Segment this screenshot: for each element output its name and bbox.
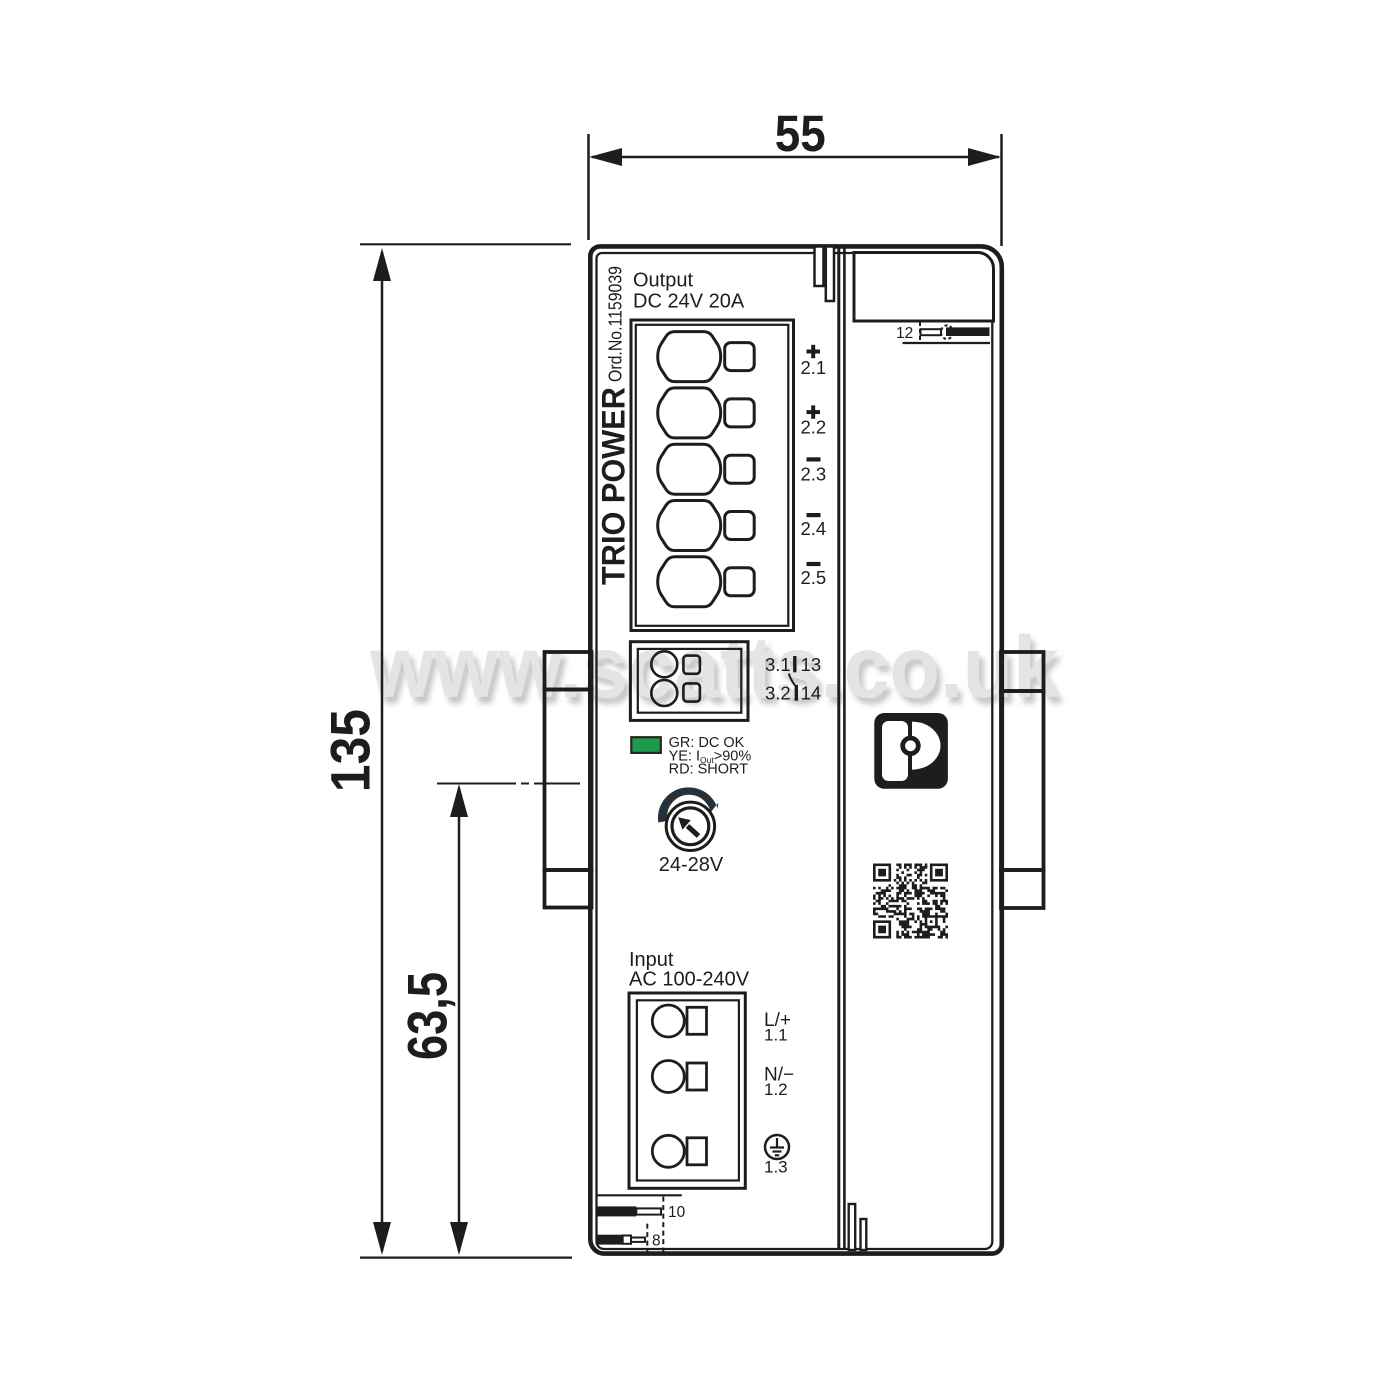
svg-text:2.5: 2.5 (800, 567, 826, 588)
svg-text:1.1: 1.1 (764, 1025, 788, 1044)
svg-text:3.2: 3.2 (765, 683, 791, 704)
svg-text:DC 24V 20A: DC 24V 20A (633, 291, 745, 313)
svg-text:8: 8 (652, 1233, 661, 1250)
svg-text:2.3: 2.3 (800, 463, 826, 484)
svg-text:13: 13 (801, 654, 822, 675)
svg-text:1.3: 1.3 (764, 1157, 788, 1176)
svg-text:10: 10 (668, 1204, 686, 1221)
svg-text:24-28V: 24-28V (659, 854, 724, 876)
svg-text:TRIO POWER: TRIO POWER (596, 387, 632, 585)
svg-text:1.2: 1.2 (764, 1080, 788, 1099)
svg-text:www.scatts.co.uk: www.scatts.co.uk (369, 619, 1060, 716)
svg-text:Ord.No.1159039: Ord.No.1159039 (605, 266, 626, 382)
svg-text:2.4: 2.4 (800, 518, 826, 539)
svg-text:63,5: 63,5 (396, 972, 459, 1060)
svg-text:2.2: 2.2 (800, 417, 826, 438)
svg-text:RD: SHORT: RD: SHORT (669, 762, 749, 778)
svg-text:2.1: 2.1 (800, 357, 826, 378)
svg-text:135: 135 (319, 709, 382, 792)
svg-text:Output: Output (633, 270, 693, 292)
svg-text:55: 55 (775, 105, 826, 162)
svg-text:14: 14 (801, 683, 822, 704)
svg-text:12: 12 (896, 325, 913, 342)
svg-text:3.1: 3.1 (765, 654, 791, 675)
svg-text:AC 100-240V: AC 100-240V (629, 969, 750, 991)
